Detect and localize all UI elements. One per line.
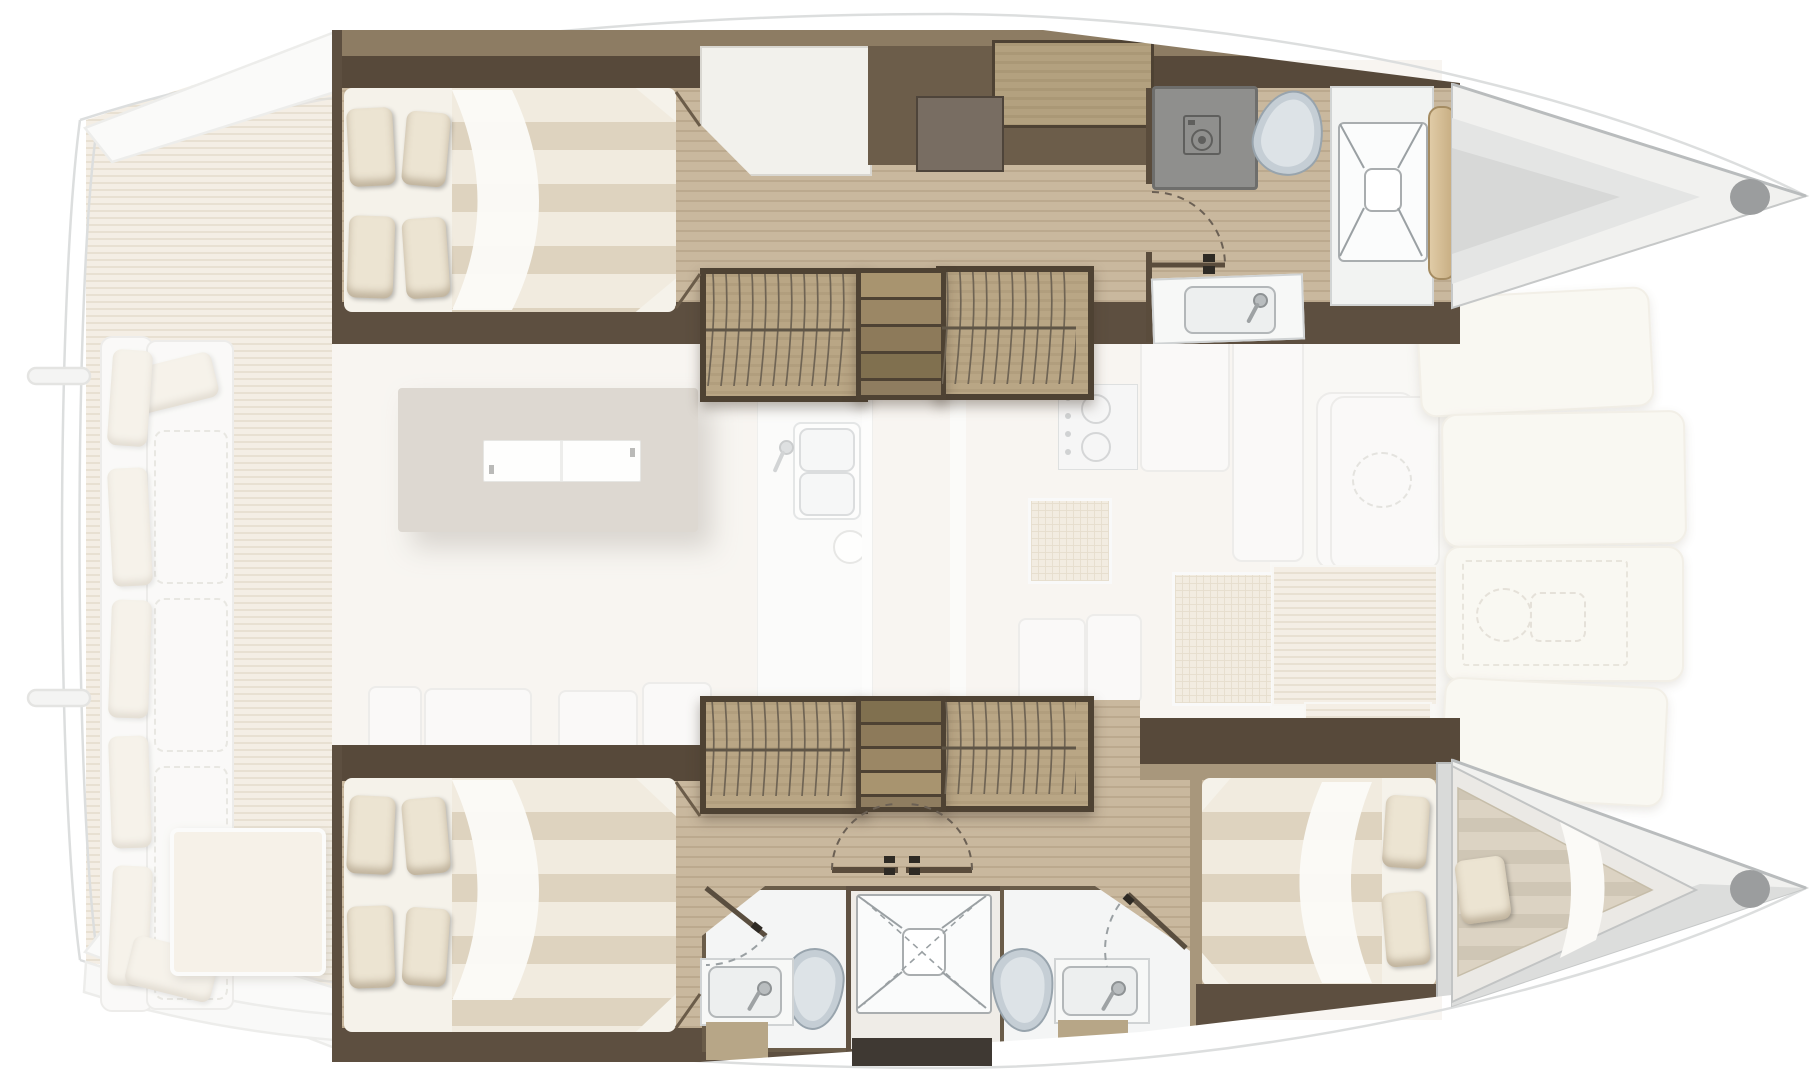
panel-latch — [489, 465, 494, 474]
galley-cabinet-low — [1086, 614, 1142, 704]
port-bath-partition — [1146, 88, 1152, 184]
stbd-aft-bed-mattress — [452, 778, 676, 1032]
sofa-cushion-outline — [154, 430, 228, 584]
stbd-wardrobe-fwd — [936, 696, 1094, 812]
galley-cabinet — [1140, 336, 1230, 472]
windlass-sketch-drum — [1476, 588, 1532, 642]
floor-plan-canvas — [0, 0, 1819, 1080]
stbd-left-wall — [332, 745, 342, 1062]
cockpit-table-pad — [170, 828, 326, 976]
panel-latch — [630, 448, 635, 457]
port-mast-support — [1428, 106, 1456, 280]
bed-pillow — [347, 215, 396, 299]
saloon-seatback — [424, 688, 532, 752]
stbd-wardrobe-aft — [700, 696, 868, 814]
stbd-fwd-cabin-wall — [1140, 718, 1460, 766]
sun-cushion — [1439, 676, 1669, 808]
stbd-aft-cabin-wall — [332, 745, 700, 781]
deck-hatch-grid — [1028, 498, 1112, 584]
saloon-table-top-panel — [483, 440, 641, 482]
bed-pillow — [1382, 795, 1431, 870]
port-steps — [856, 268, 946, 400]
sofa-pillow — [108, 599, 152, 718]
port-cabinet — [992, 40, 1154, 128]
sun-cushion — [1441, 410, 1687, 548]
hatch-dashed-circle — [1352, 452, 1412, 508]
port-wardrobe-fwd — [936, 266, 1094, 400]
stove-knob — [1065, 449, 1071, 455]
step — [861, 773, 941, 797]
stbd-shower-threshold — [852, 1038, 992, 1066]
stove-knob — [1065, 431, 1071, 437]
port-desk — [916, 96, 1004, 172]
bed-pillow — [401, 217, 450, 300]
port-shower-drain — [1364, 168, 1402, 212]
saloon-seatback — [558, 690, 638, 752]
sink-basin — [799, 428, 855, 472]
port-washing-machine — [1152, 86, 1258, 190]
forepeak-pillow — [1454, 855, 1512, 925]
sofa-cushion-outline — [154, 598, 228, 752]
fwd-cockpit-grid — [1172, 572, 1274, 706]
saloon-seatback — [368, 686, 422, 752]
step — [861, 749, 941, 773]
windlass-sketch-motor — [1530, 592, 1586, 642]
saloon-partition-band — [862, 384, 872, 728]
bed-pillow — [346, 795, 396, 875]
step — [861, 725, 941, 749]
bed-pillow — [401, 907, 450, 988]
sofa-pillow — [107, 349, 154, 448]
step — [861, 327, 941, 354]
port-wardrobe-aft — [700, 268, 868, 402]
bed-pillow — [346, 107, 396, 187]
galley-cabinet-low — [1018, 618, 1086, 704]
bed-pillow — [401, 110, 451, 188]
stbd-fwd-bulkhead — [1436, 762, 1456, 1008]
step — [861, 354, 941, 381]
stbd-shower-drain — [902, 928, 946, 976]
stbd-vanity-wood — [706, 1022, 768, 1060]
stbd-steps — [856, 696, 946, 812]
bed-pillow — [347, 905, 396, 989]
stbd-fwd-bed-mattress — [1202, 778, 1382, 986]
stbd-sink-fwd-basin — [1062, 966, 1138, 1016]
bed-pillow — [401, 796, 451, 876]
foredeck-teak-step — [1272, 565, 1438, 706]
sofa-pillow — [107, 467, 153, 587]
panel-divider — [560, 441, 563, 481]
stove-knob — [1065, 413, 1071, 419]
port-aft-bed-mattress — [452, 88, 676, 312]
step — [861, 300, 941, 327]
port-left-wall — [332, 30, 342, 344]
stove-burner — [1081, 432, 1111, 462]
sofa-pillow — [108, 735, 152, 848]
step — [861, 701, 941, 725]
bed-pillow — [1381, 890, 1431, 968]
step — [861, 273, 941, 300]
sink-basin — [799, 472, 855, 516]
galley-fridge-column — [1232, 330, 1304, 562]
